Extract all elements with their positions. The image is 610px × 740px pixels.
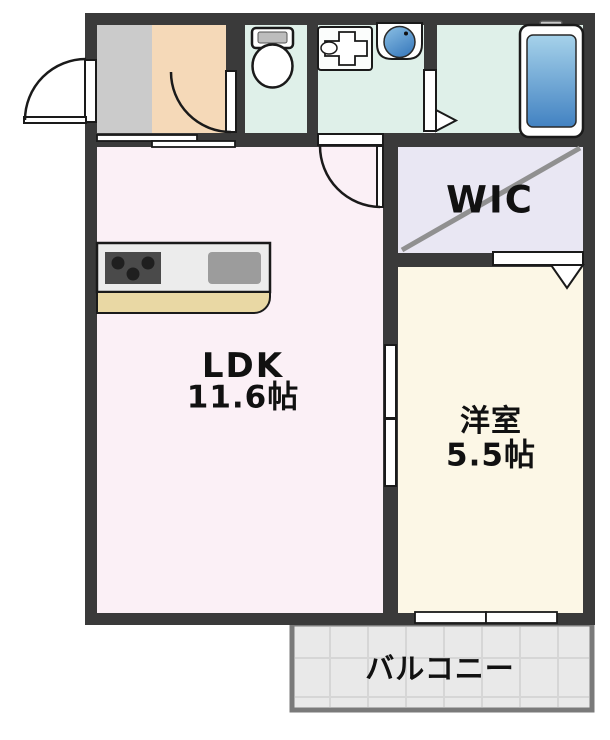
toilet-icon — [252, 28, 293, 88]
room-genkan — [97, 25, 152, 133]
ldk-size-label: 11.6帖 — [187, 383, 300, 414]
washbasin-icon — [377, 23, 422, 59]
ldk-label: LDK — [202, 349, 284, 383]
wall-right — [583, 13, 595, 625]
washing-machine-pan-icon — [318, 27, 372, 70]
western-label: 洋室 — [460, 407, 522, 437]
balcony-window — [415, 612, 557, 623]
wall-toilet-wash — [307, 25, 318, 133]
floor-plan: WIC LDK 11.6帖 洋室 5.5帖 バルコニー — [0, 0, 610, 740]
western-size-label: 5.5帖 — [446, 441, 536, 472]
kitchen-counter — [97, 243, 270, 313]
kitchen-sink-icon — [208, 252, 261, 284]
entrance-door-icon — [24, 59, 96, 123]
wic-label: WIC — [446, 182, 534, 219]
bathtub-icon — [520, 21, 583, 137]
wall-top — [85, 13, 595, 25]
sliding-door-ldk-western — [385, 345, 396, 486]
kitchen-ledge — [97, 292, 270, 313]
room-hallway — [152, 25, 226, 133]
wall-wash-bath — [424, 13, 437, 70]
floor-plan-drawing — [0, 0, 610, 740]
balcony-label: バルコニー — [365, 655, 514, 684]
